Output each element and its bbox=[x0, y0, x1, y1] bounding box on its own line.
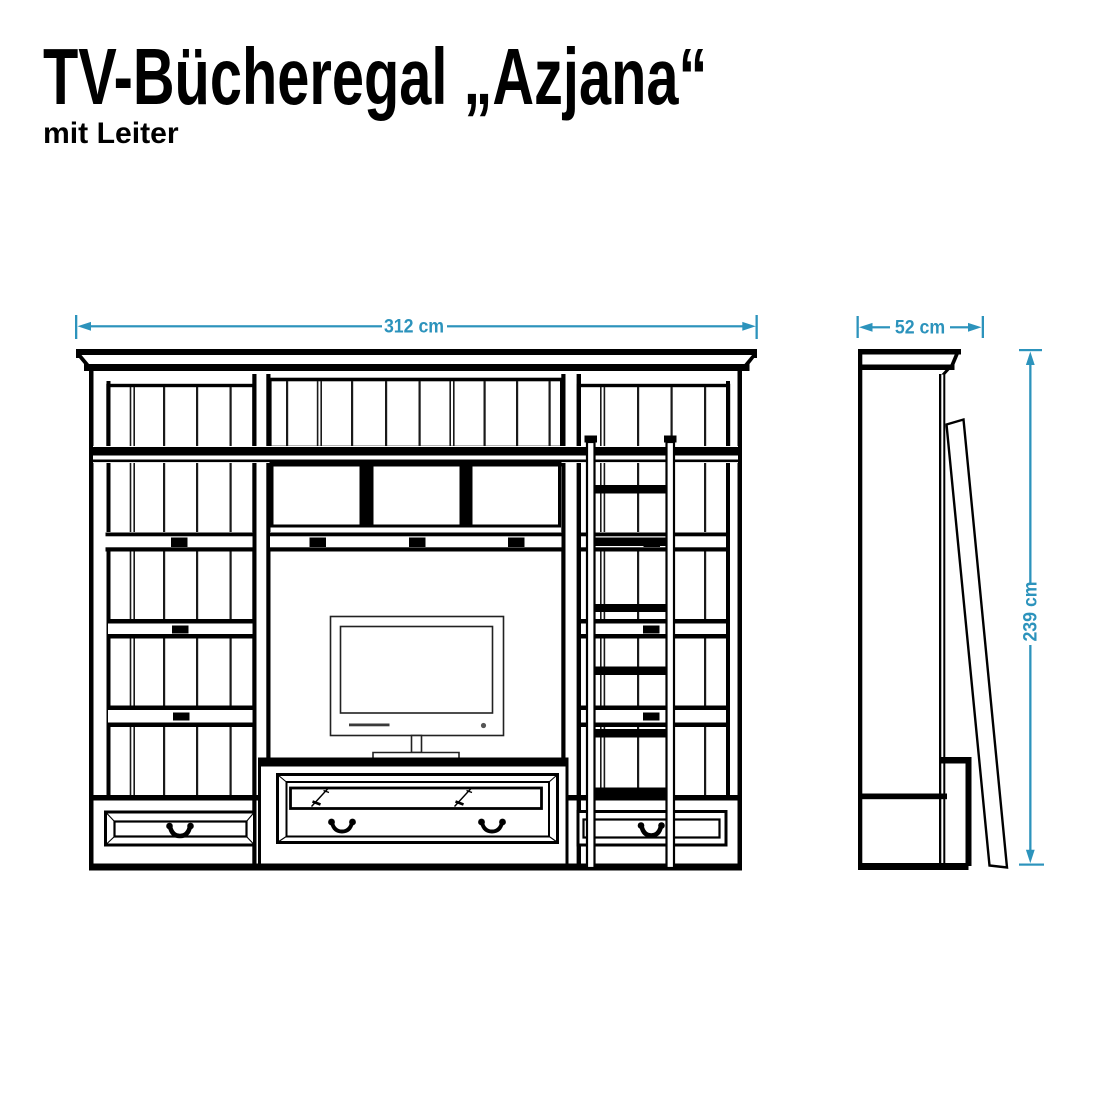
svg-text:TV-Bücheregal „Azjana“: TV-Bücheregal „Azjana“ bbox=[43, 32, 707, 121]
svg-text:239 cm: 239 cm bbox=[1019, 581, 1041, 641]
svg-text:52 cm: 52 cm bbox=[895, 316, 945, 338]
svg-text:312 cm: 312 cm bbox=[384, 315, 444, 337]
svg-text:mit Leiter: mit Leiter bbox=[43, 117, 179, 150]
